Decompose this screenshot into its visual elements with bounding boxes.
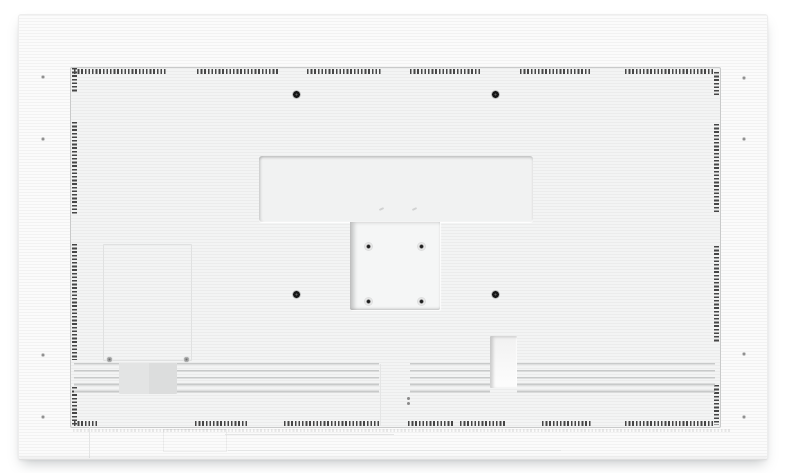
vesa-mount-plate — [350, 222, 440, 310]
vent-perforation-left — [72, 68, 77, 92]
panel-seam — [225, 434, 394, 435]
vent-perforation-top — [307, 69, 382, 74]
wall-mount-hole — [292, 90, 301, 99]
vesa-screw-hole — [364, 242, 373, 251]
vent-perforation-top — [625, 69, 715, 74]
frame-screw-hole — [41, 75, 45, 79]
vent-perforation-bottom — [460, 421, 505, 426]
vent-slats — [74, 363, 119, 394]
cable-recess — [490, 336, 517, 388]
vent-perforation-left — [72, 122, 77, 215]
alignment-dot — [407, 397, 410, 400]
wall-mount-hole — [491, 290, 500, 299]
wall-mount-hole — [491, 90, 500, 99]
product-photo-stage — [0, 0, 788, 473]
vesa-mount-recess-bar — [259, 156, 533, 222]
vent-perforation-right — [714, 72, 719, 95]
panel-seam — [163, 429, 227, 452]
vent-slats — [177, 363, 379, 394]
frame-screw-hole — [742, 76, 746, 80]
vent-slats — [517, 363, 715, 394]
vent-perforation-right — [714, 246, 719, 342]
vent-slats — [410, 363, 490, 394]
frame-screw-hole — [742, 352, 746, 356]
vesa-screw-hole — [417, 297, 426, 306]
frame-screw-hole — [41, 137, 45, 141]
vent-perforation-top — [410, 69, 480, 74]
vent-perforation-top — [520, 69, 590, 74]
panel-seam — [380, 364, 381, 426]
frame-screw-hole — [742, 137, 746, 141]
panel-seam — [228, 450, 561, 451]
vesa-screw-hole — [417, 242, 426, 251]
frame-screw-hole — [41, 415, 45, 419]
frame-screw-hole — [41, 353, 45, 357]
vent-perforation-bottom — [74, 421, 97, 426]
vent-perforation-left — [72, 244, 77, 360]
label-sticker — [119, 363, 177, 394]
vent-perforation-bottom — [625, 421, 715, 426]
vent-perforation-bottom — [542, 421, 592, 426]
vent-perforation-bottom — [408, 421, 453, 426]
vent-perforation-bottom — [195, 421, 249, 426]
display-rear-body — [18, 14, 768, 460]
vent-perforation-top — [74, 69, 167, 74]
alignment-dot — [407, 402, 410, 405]
panel-seam — [89, 427, 90, 458]
service-panel-screw — [183, 356, 190, 363]
vesa-screw-hole — [364, 297, 373, 306]
service-panel — [103, 244, 192, 361]
back-cover-panel — [70, 67, 721, 428]
frame-screw-hole — [742, 415, 746, 419]
vent-perforation-right — [714, 124, 719, 212]
vent-perforation-bottom — [284, 421, 379, 426]
wall-mount-hole — [292, 290, 301, 299]
service-panel-screw — [106, 356, 113, 363]
vent-perforation-top — [197, 69, 279, 74]
